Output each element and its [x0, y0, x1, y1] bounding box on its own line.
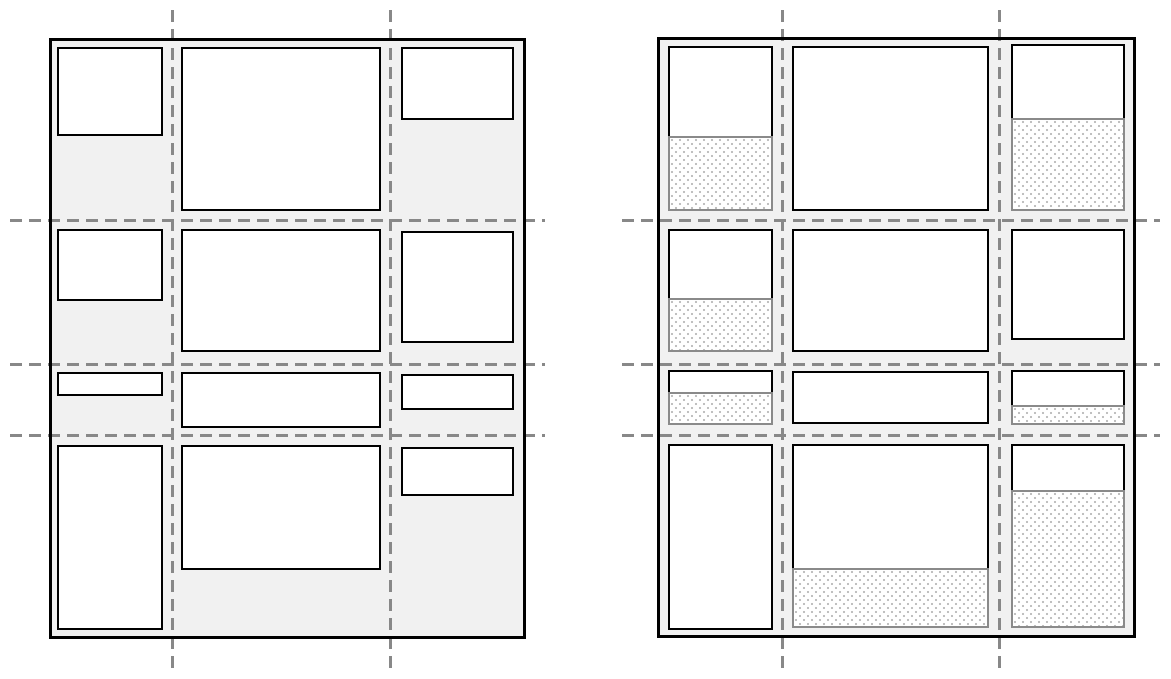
grid-container-border [657, 37, 1136, 638]
diagram-canvas [0, 0, 1171, 679]
grid-container-border [49, 38, 526, 639]
